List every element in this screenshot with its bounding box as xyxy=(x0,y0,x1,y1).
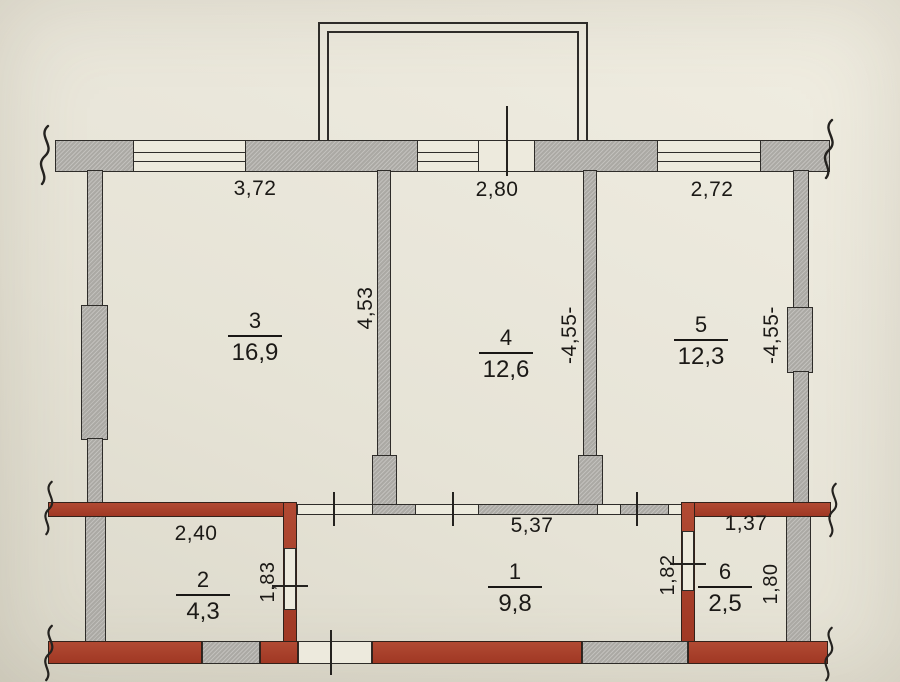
dim-width-537: 5,37 xyxy=(482,513,582,539)
balcony-outline-inner xyxy=(327,31,579,143)
balcony-door-tick xyxy=(506,106,508,176)
bottom-wall-brick xyxy=(688,641,828,664)
dim-width-280: 2,80 xyxy=(447,177,547,203)
door-opening-room2 xyxy=(284,548,296,610)
fraction-line xyxy=(228,335,282,337)
partition-segment xyxy=(372,504,416,515)
bottom-wall-brick xyxy=(48,641,202,664)
right-wall-upper xyxy=(793,170,809,309)
room-number: 6 xyxy=(719,559,731,584)
partition-segment xyxy=(415,504,479,515)
dimension-tick xyxy=(636,492,638,526)
wall-break-icon xyxy=(38,624,60,682)
dim-height-455-b: -4,55- xyxy=(759,275,785,395)
wall-break-icon xyxy=(818,118,840,180)
bottom-wall-masonry-block xyxy=(202,641,260,664)
dim-width-372: 3,72 xyxy=(205,176,305,202)
top-wall-corner-left xyxy=(55,140,134,172)
room-number: 4 xyxy=(500,325,512,350)
bottom-wall-brick xyxy=(372,641,582,664)
room-area: 12,3 xyxy=(678,343,725,371)
wall-break-icon xyxy=(822,482,844,538)
room-label-2: 2 4,3 xyxy=(143,567,263,626)
room-area: 4,3 xyxy=(186,598,219,626)
floor-plan: 3,72 2,80 2,72 4,53 -4,55- -4,55- 2,40 5… xyxy=(0,0,900,682)
room-area: 9,8 xyxy=(498,590,531,618)
window xyxy=(417,140,479,172)
partition-segment xyxy=(620,504,669,515)
fraction-line xyxy=(176,594,230,596)
dimension-tick xyxy=(333,492,335,526)
wall-break-icon xyxy=(34,124,56,186)
wall-room3-room4 xyxy=(377,170,391,457)
wall-room4-room5 xyxy=(583,170,597,457)
left-wall-bottom-strip xyxy=(85,505,106,643)
dimension-tick xyxy=(452,492,454,526)
room-number: 3 xyxy=(249,308,261,333)
room-area: 16,9 xyxy=(232,339,279,367)
window-glazing-lines xyxy=(134,152,245,162)
bottom-wall-opening xyxy=(298,641,372,664)
room-label-6: 6 2,5 xyxy=(665,559,785,618)
wall-break-icon xyxy=(818,626,840,682)
room-label-3: 3 16,9 xyxy=(195,308,315,367)
window xyxy=(657,140,761,172)
partition-segment xyxy=(597,504,621,515)
left-wall-upper xyxy=(87,170,103,307)
partition-segment xyxy=(668,504,682,515)
window-glazing-lines xyxy=(418,152,478,162)
room-label-1: 1 9,8 xyxy=(455,559,575,618)
top-wall-pier xyxy=(245,140,418,172)
dim-width-272: 2,72 xyxy=(662,177,762,203)
fraction-line xyxy=(674,339,728,341)
left-wall-pilaster xyxy=(81,305,108,440)
room-number: 2 xyxy=(197,567,209,592)
room-number: 5 xyxy=(695,312,707,337)
fraction-line xyxy=(479,352,533,354)
window-glazing-lines xyxy=(658,152,760,162)
partition-segment xyxy=(297,504,373,515)
room-label-4: 4 12,6 xyxy=(446,325,566,384)
room-number: 1 xyxy=(509,559,521,584)
window xyxy=(133,140,246,172)
top-wall-pier xyxy=(534,140,658,172)
wall-break-icon xyxy=(38,480,60,536)
left-wall-lower xyxy=(87,438,103,505)
wall-room4-room5-foot xyxy=(578,455,603,505)
dim-height-453: 4,53 xyxy=(353,248,379,368)
wall-room3-room4-foot xyxy=(372,455,397,505)
middle-wall-brick-left xyxy=(48,502,297,517)
right-wall-pilaster xyxy=(787,307,813,373)
bottom-wall-masonry-block xyxy=(582,641,688,664)
bottom-wall-brick xyxy=(260,641,298,664)
room-area: 12,6 xyxy=(483,356,530,384)
dimension-tick xyxy=(330,630,332,675)
dim-width-240: 2,40 xyxy=(146,521,246,547)
fraction-line xyxy=(488,586,542,588)
right-wall-lower xyxy=(793,371,809,505)
fraction-line xyxy=(698,586,752,588)
room-label-5: 5 12,3 xyxy=(641,312,761,371)
room-area: 2,5 xyxy=(708,590,741,618)
